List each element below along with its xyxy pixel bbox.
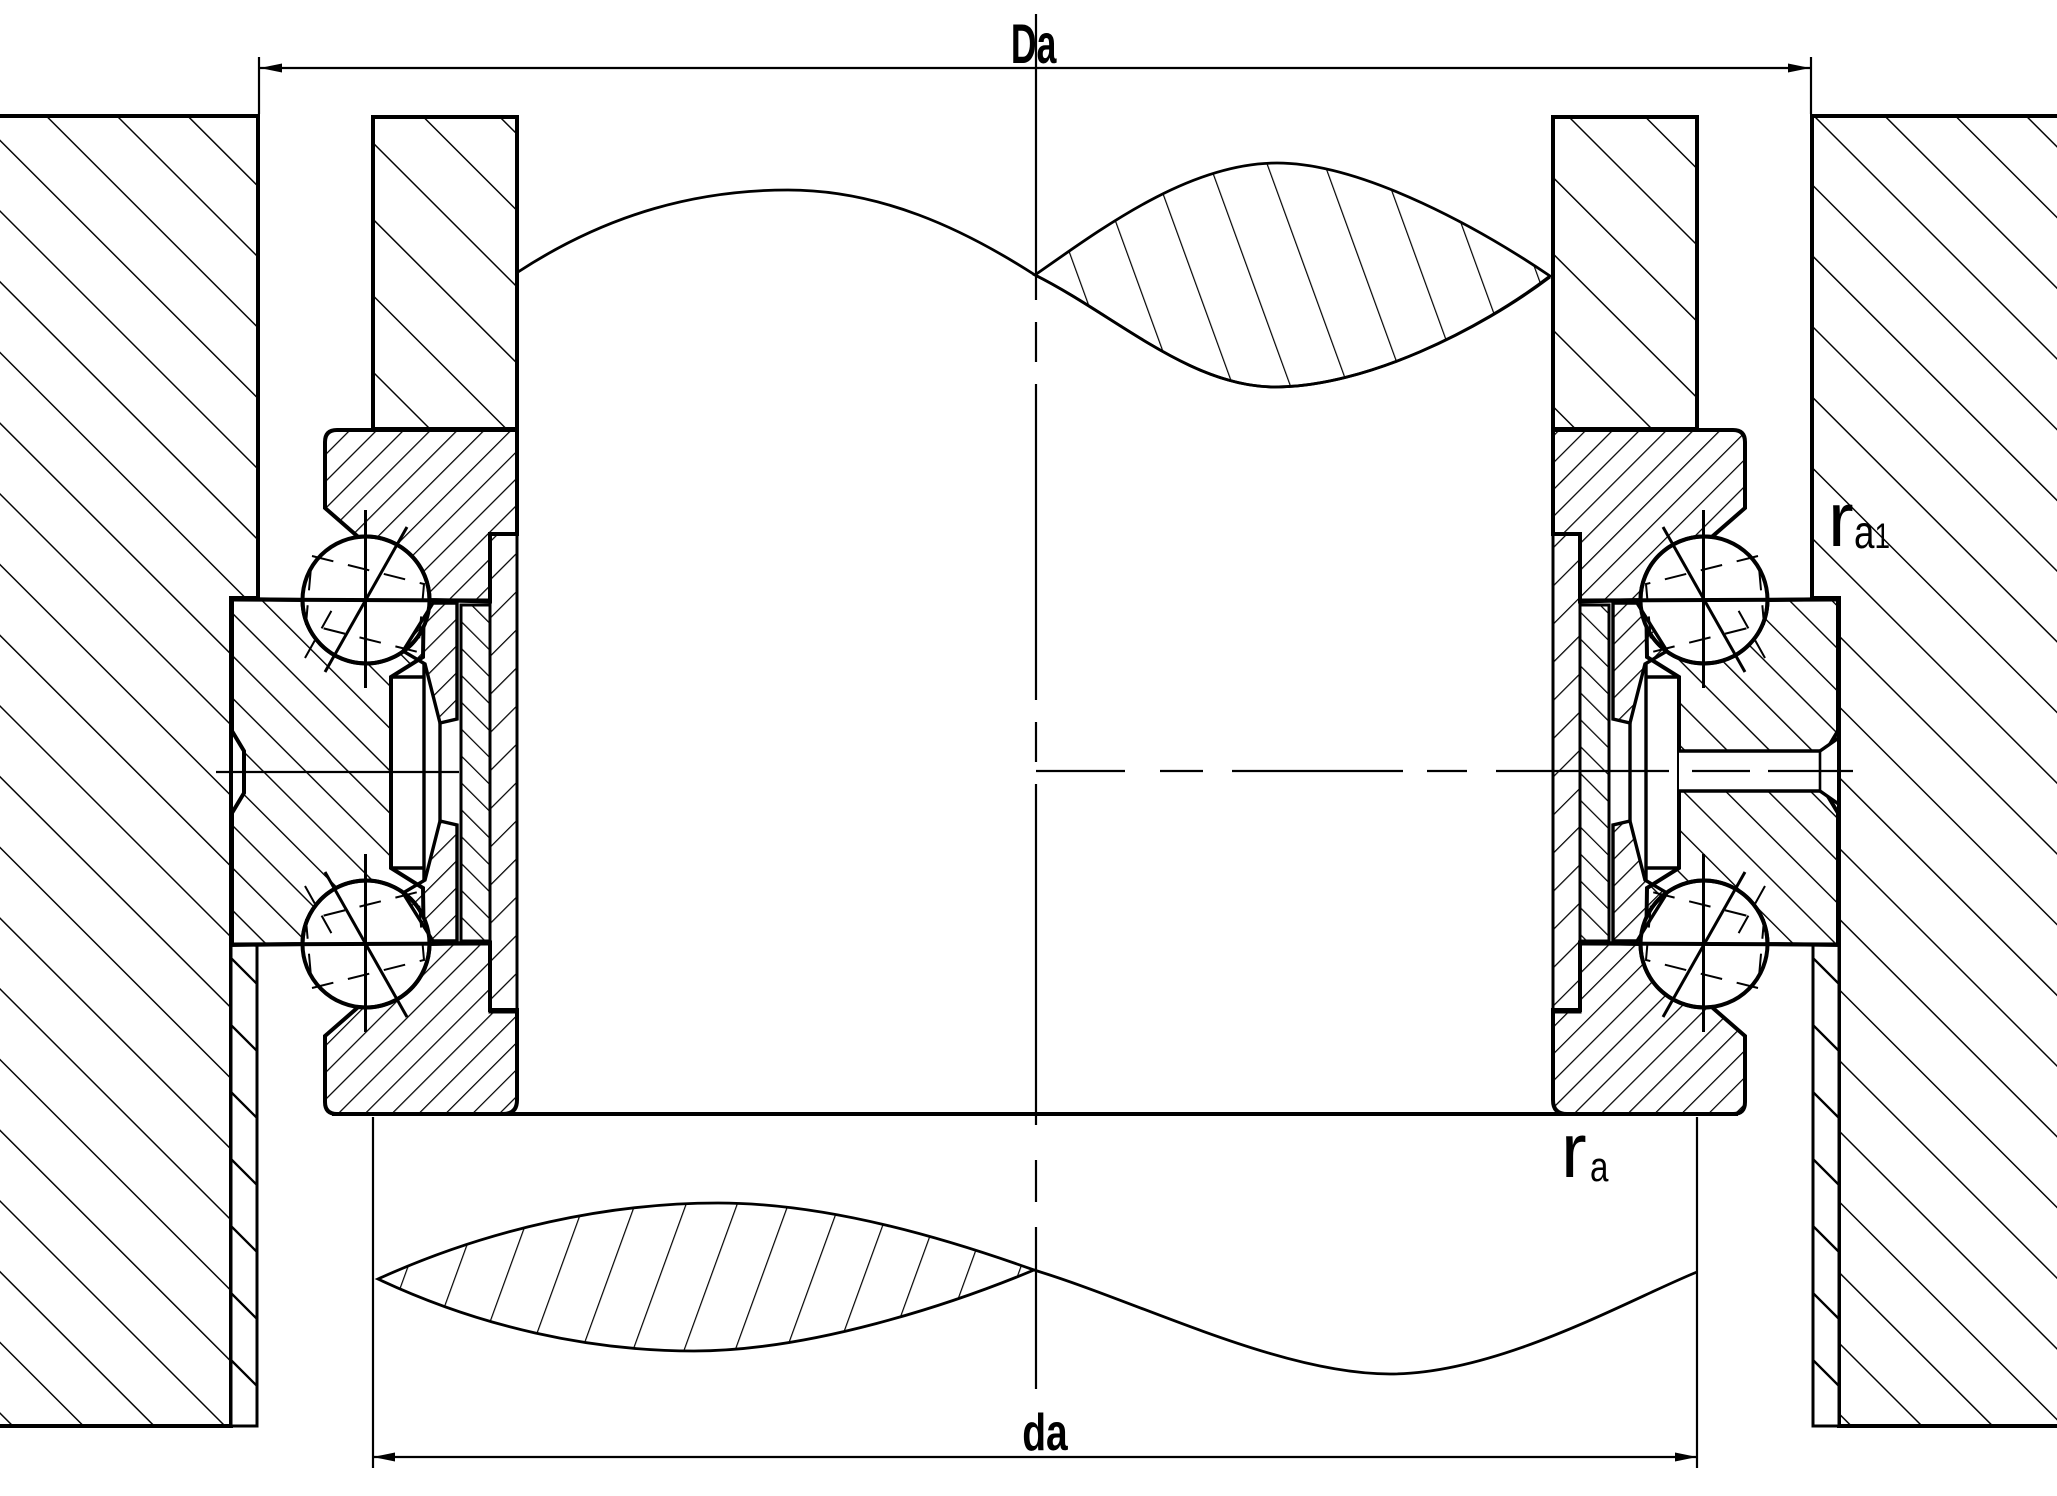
svg-text:a: a: [1590, 1144, 1609, 1191]
svg-text:r: r: [1561, 1108, 1587, 1194]
svg-text:r: r: [1828, 477, 1854, 563]
svg-text:Da: Da: [1011, 13, 1057, 75]
svg-text:da: da: [1022, 1402, 1068, 1461]
